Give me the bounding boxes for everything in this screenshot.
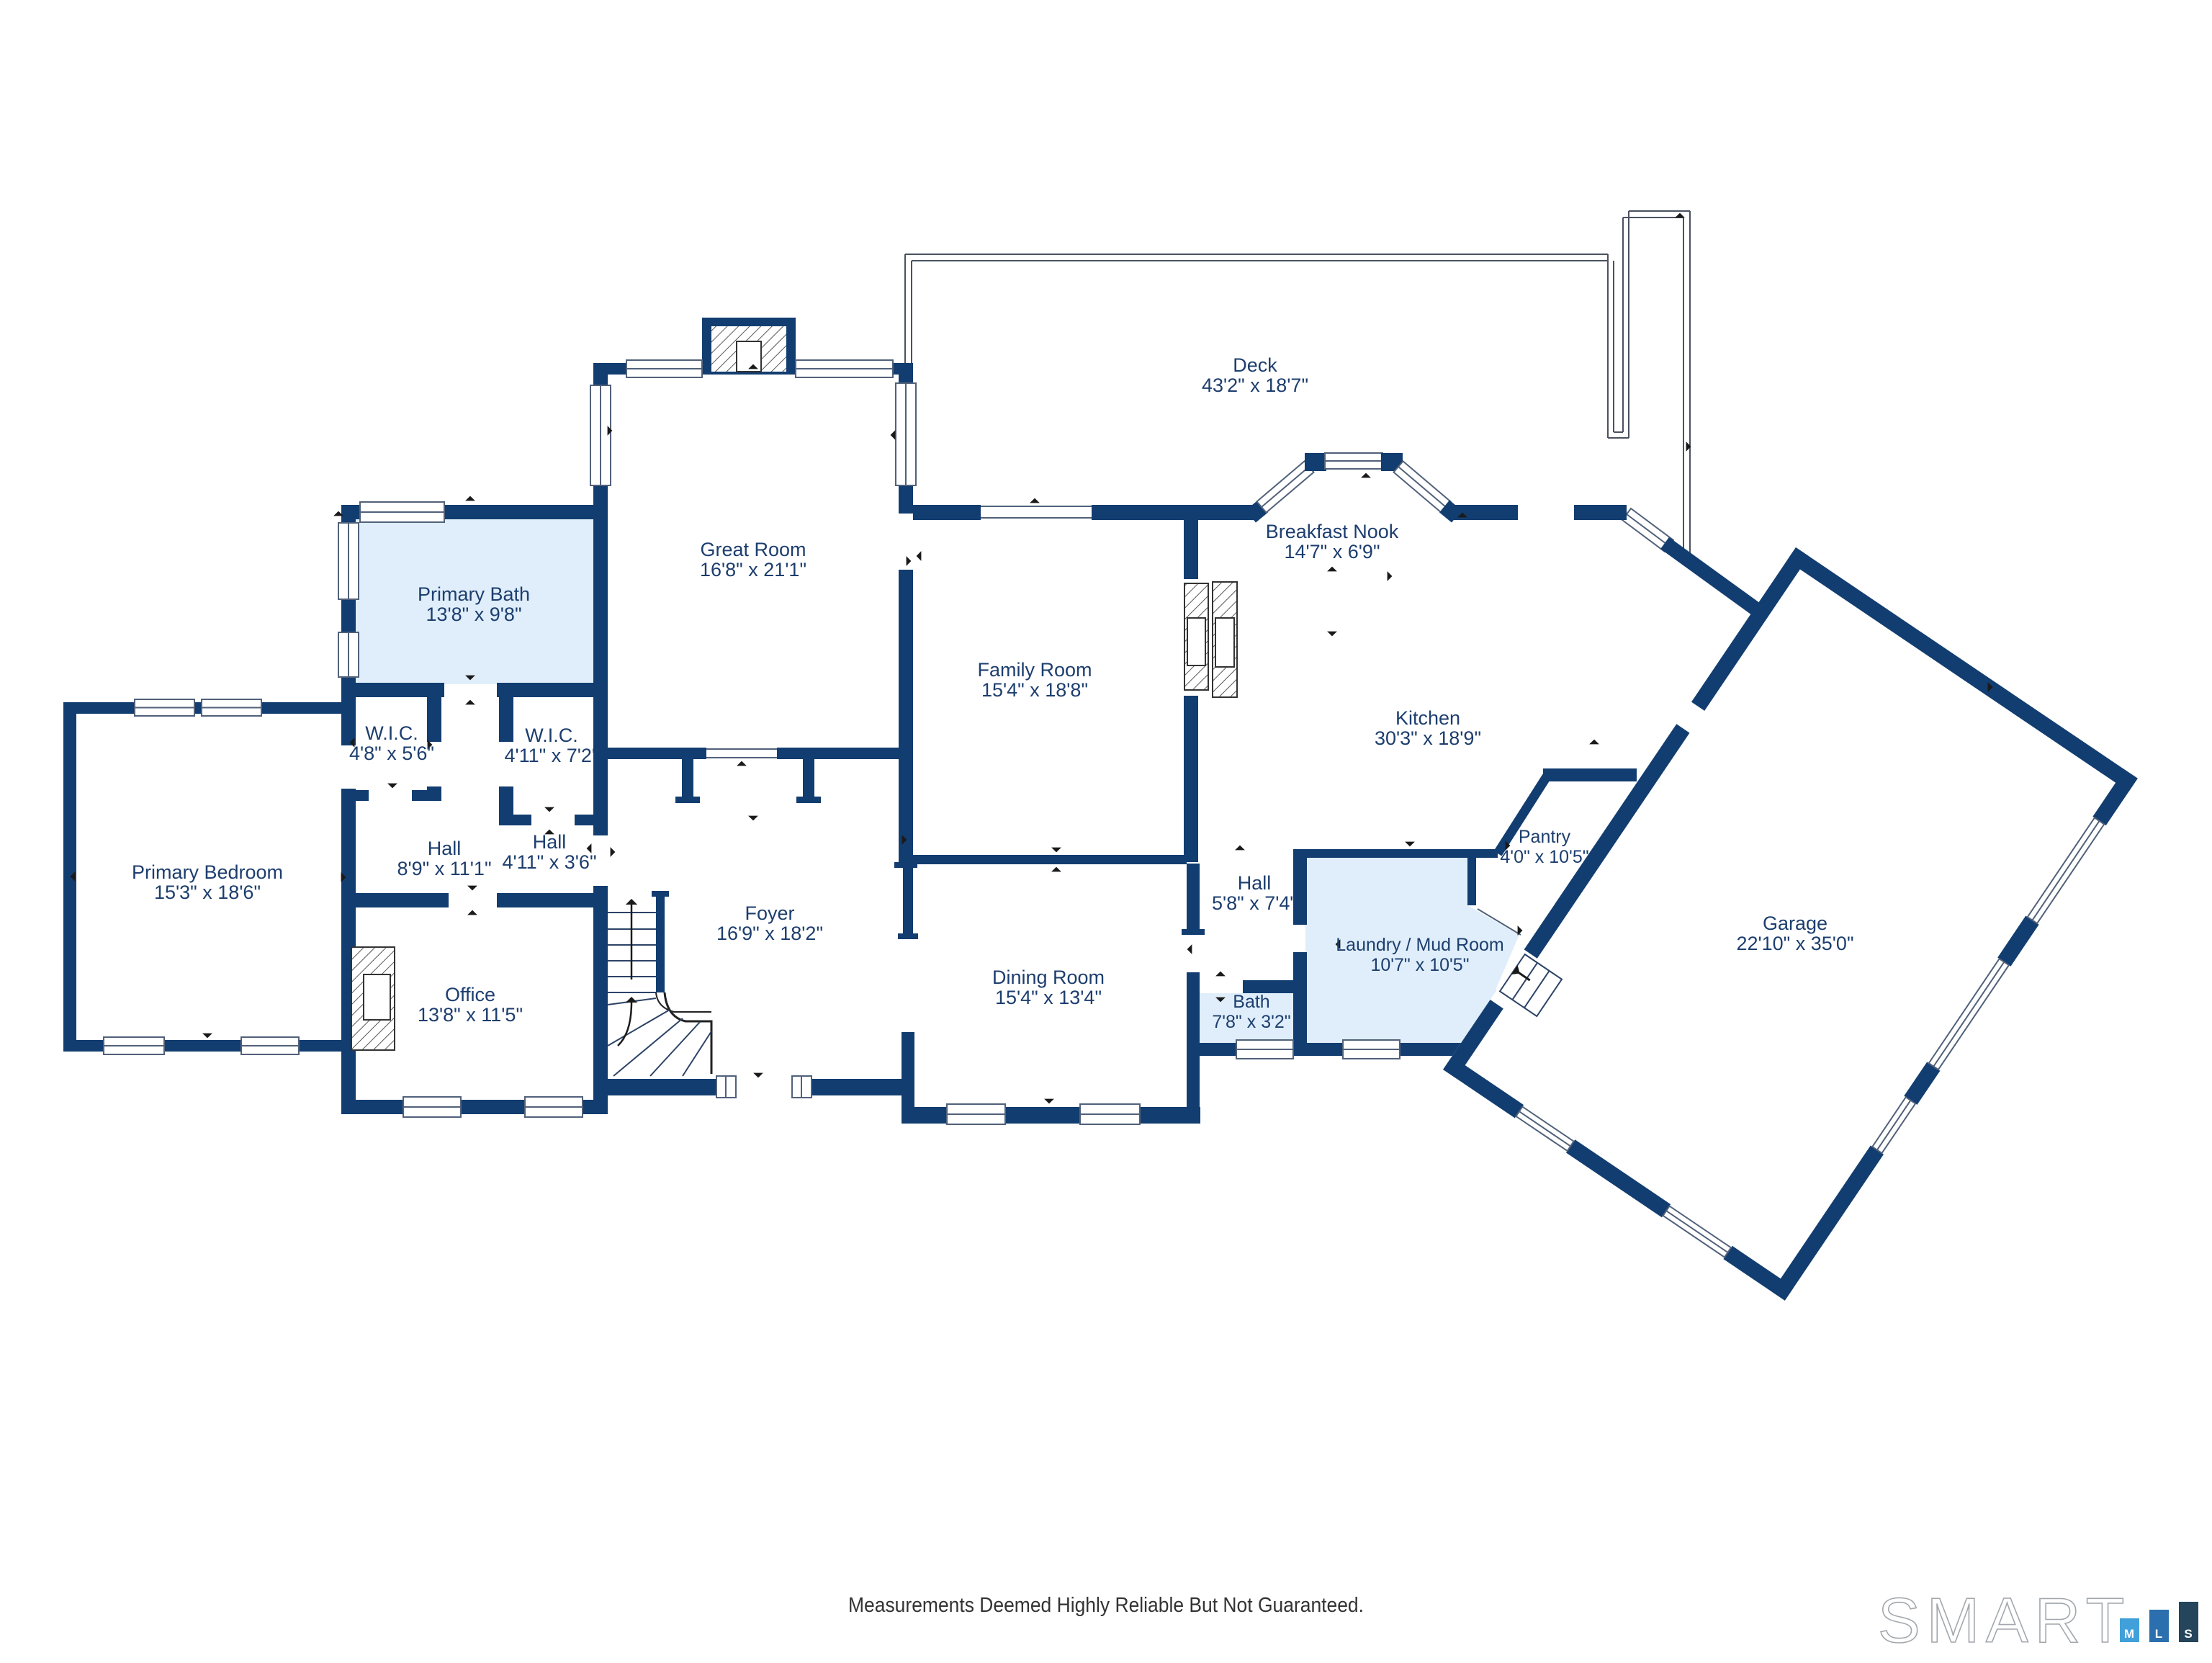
svg-text:Measurements Deemed Highly Rel: Measurements Deemed Highly Reliable But … bbox=[848, 1594, 1364, 1617]
svg-text:Pantry: Pantry bbox=[1519, 827, 1571, 847]
svg-text:5'8" x 7'4": 5'8" x 7'4" bbox=[1212, 892, 1297, 914]
svg-text:Dining Room: Dining Room bbox=[992, 967, 1105, 988]
svg-text:30'3" x 18'9": 30'3" x 18'9" bbox=[1375, 727, 1481, 749]
svg-text:Hall: Hall bbox=[1238, 872, 1272, 894]
svg-text:4'8" x 5'6": 4'8" x 5'6" bbox=[349, 743, 434, 764]
svg-text:4'11" x 7'2": 4'11" x 7'2" bbox=[504, 745, 598, 766]
svg-text:Laundry / Mud Room: Laundry / Mud Room bbox=[1336, 935, 1503, 955]
svg-text:14'7" x 6'9": 14'7" x 6'9" bbox=[1284, 541, 1380, 562]
svg-text:Garage: Garage bbox=[1763, 913, 1827, 934]
svg-text:Foyer: Foyer bbox=[745, 902, 794, 924]
svg-text:Primary Bedroom: Primary Bedroom bbox=[132, 861, 283, 883]
svg-text:15'4" x 18'8": 15'4" x 18'8" bbox=[981, 679, 1088, 701]
svg-text:M: M bbox=[2124, 1627, 2134, 1641]
svg-text:16'8" x 21'1": 16'8" x 21'1" bbox=[700, 559, 806, 581]
svg-text:W.I.C.: W.I.C. bbox=[365, 722, 418, 744]
svg-text:Hall: Hall bbox=[428, 838, 462, 859]
svg-text:43'2" x 18'7": 43'2" x 18'7" bbox=[1202, 375, 1308, 396]
svg-text:Primary Bath: Primary Bath bbox=[418, 583, 530, 605]
svg-text:4'11" x 3'6": 4'11" x 3'6" bbox=[502, 851, 596, 873]
svg-text:15'3" x 18'6": 15'3" x 18'6" bbox=[154, 882, 261, 903]
svg-text:8'9" x 11'1": 8'9" x 11'1" bbox=[397, 858, 491, 879]
svg-text:4'0" x 10'5": 4'0" x 10'5" bbox=[1500, 847, 1588, 867]
svg-text:Deck: Deck bbox=[1233, 354, 1277, 376]
svg-text:L: L bbox=[2155, 1627, 2162, 1641]
svg-text:Breakfast Nook: Breakfast Nook bbox=[1266, 521, 1399, 542]
svg-text:Hall: Hall bbox=[533, 831, 567, 853]
svg-text:13'8" x 9'8": 13'8" x 9'8" bbox=[426, 604, 521, 625]
svg-text:Kitchen: Kitchen bbox=[1395, 707, 1460, 729]
svg-text:10'7" x 10'5": 10'7" x 10'5" bbox=[1370, 955, 1469, 975]
svg-text:15'4" x 13'4": 15'4" x 13'4" bbox=[995, 987, 1102, 1008]
svg-text:16'9" x 18'2": 16'9" x 18'2" bbox=[716, 923, 823, 944]
svg-text:W.I.C.: W.I.C. bbox=[525, 725, 578, 746]
svg-text:S: S bbox=[2184, 1627, 2192, 1641]
svg-text:SMART: SMART bbox=[1878, 1584, 2131, 1656]
svg-text:7'8" x 3'2": 7'8" x 3'2" bbox=[1212, 1012, 1290, 1032]
svg-text:13'8" x 11'5": 13'8" x 11'5" bbox=[418, 1004, 523, 1026]
svg-text:Family Room: Family Room bbox=[977, 659, 1092, 681]
svg-text:Great Room: Great Room bbox=[700, 539, 806, 560]
svg-text:Bath: Bath bbox=[1233, 992, 1269, 1012]
svg-text:Office: Office bbox=[445, 984, 495, 1005]
svg-text:22'10" x 35'0": 22'10" x 35'0" bbox=[1736, 933, 1853, 954]
